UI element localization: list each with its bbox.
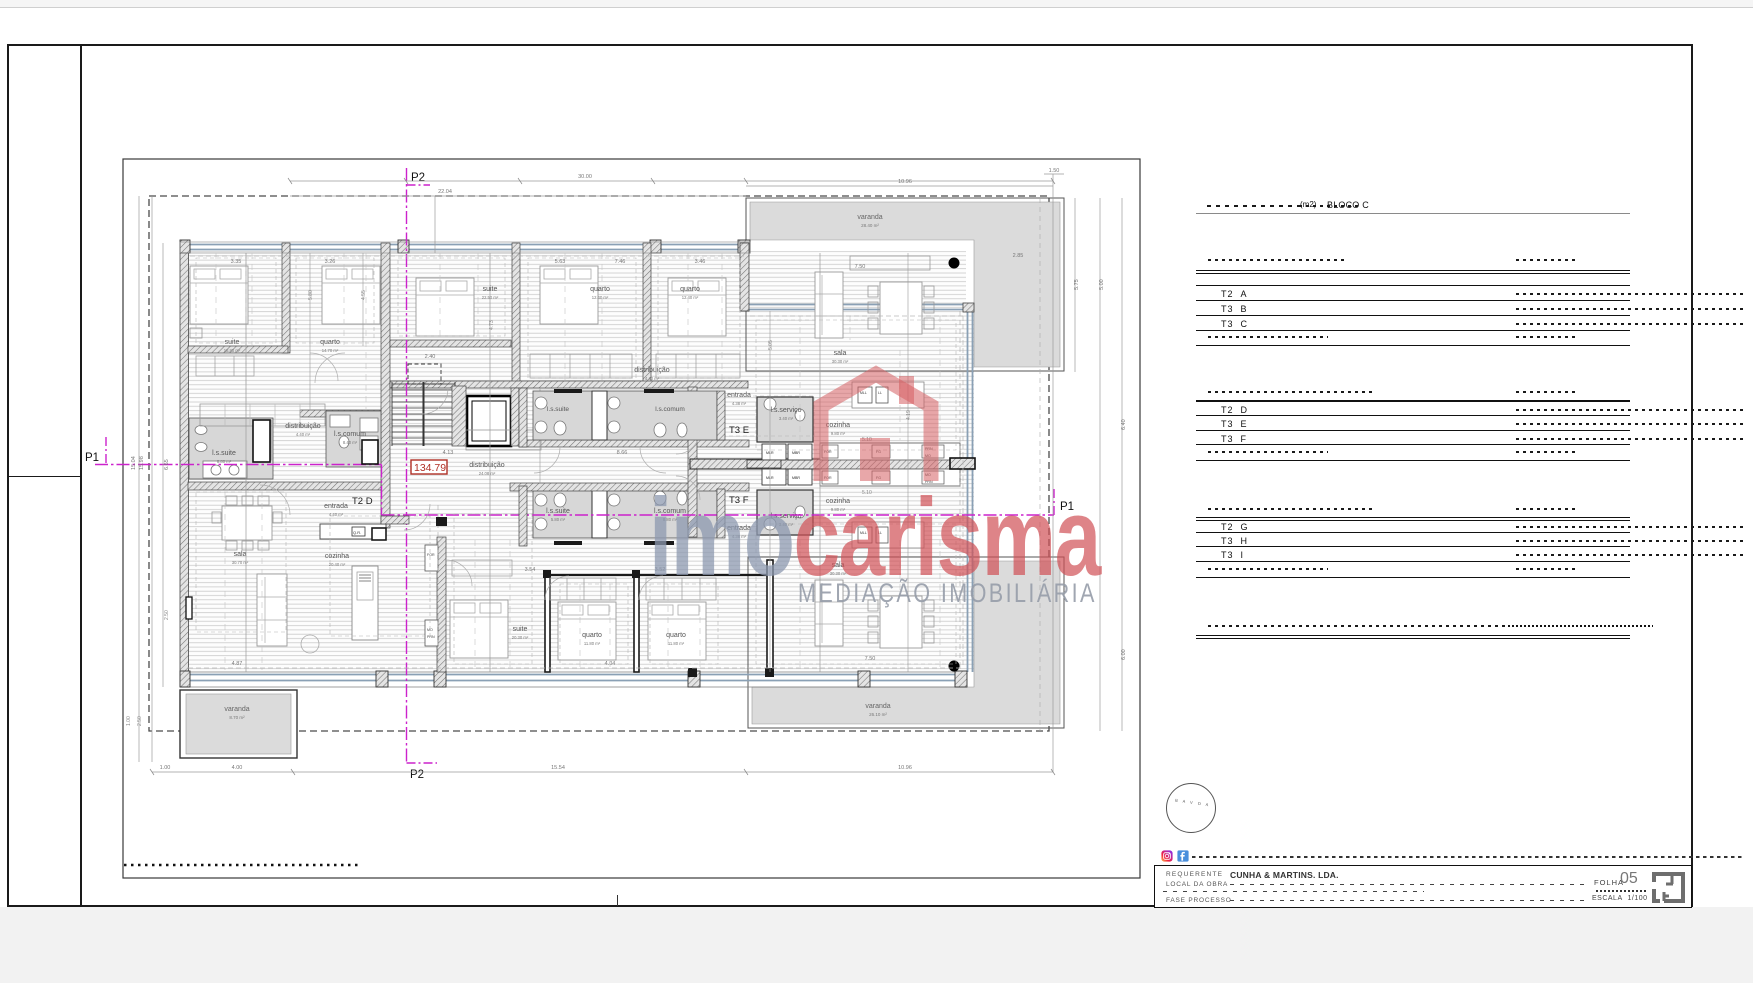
svg-text:Q.R.: Q.R. <box>353 530 361 535</box>
svg-text:2.40: 2.40 <box>425 354 436 360</box>
svg-text:entrada: entrada <box>324 503 348 510</box>
svg-text:PRN: PRN <box>427 635 435 639</box>
svg-text:P2: P2 <box>410 769 424 781</box>
svg-text:5.63: 5.63 <box>555 259 566 265</box>
svg-text:distribuição: distribuição <box>634 367 670 374</box>
svg-text:8.70 m²: 8.70 m² <box>229 715 245 720</box>
svg-text:3.46: 3.46 <box>695 259 706 265</box>
svg-text:4.40 m²: 4.40 m² <box>296 432 311 437</box>
svg-text:1.00: 1.00 <box>126 716 132 726</box>
svg-text:quarto: quarto <box>680 286 700 293</box>
svg-text:11.80 m²: 11.80 m² <box>668 641 685 646</box>
svg-text:4.40 m²: 4.40 m² <box>645 376 660 381</box>
svg-text:suite: suite <box>513 626 528 633</box>
svg-text:10.96: 10.96 <box>898 765 912 771</box>
svg-text:4.00: 4.00 <box>232 765 243 771</box>
svg-text:T2 D: T2 D <box>352 496 373 507</box>
svg-text:5.05: 5.05 <box>768 340 774 350</box>
svg-text:entrada: entrada <box>727 392 751 399</box>
svg-text:l.s.suite: l.s.suite <box>546 508 570 515</box>
svg-text:7.50: 7.50 <box>855 264 866 270</box>
svg-text:3.26: 3.26 <box>325 259 336 265</box>
svg-text:varanda: varanda <box>865 703 890 710</box>
svg-text:quarto: quarto <box>582 632 602 639</box>
svg-text:4.13: 4.13 <box>443 450 454 456</box>
svg-text:11.80 m²: 11.80 m² <box>584 641 601 646</box>
svg-text:l.s.comum: l.s.comum <box>655 406 685 413</box>
svg-text:7.50: 7.50 <box>865 656 876 662</box>
svg-text:quarto: quarto <box>590 286 610 293</box>
svg-text:5.80: 5.80 <box>308 290 314 300</box>
svg-text:28.40 m²: 28.40 m² <box>861 223 879 228</box>
svg-text:distribuição: distribuição <box>285 423 321 430</box>
svg-text:5.75: 5.75 <box>1074 279 1080 290</box>
svg-text:12.40 m²: 12.40 m² <box>682 295 699 300</box>
svg-text:6.65: 6.65 <box>164 459 170 470</box>
svg-text:134.79: 134.79 <box>414 462 446 474</box>
svg-text:3.35: 3.35 <box>231 259 242 265</box>
svg-text:8.40 m²: 8.40 m² <box>343 440 358 445</box>
svg-text:10.96: 10.96 <box>898 179 912 185</box>
svg-text:suite: suite <box>225 339 240 346</box>
svg-text:cozinha: cozinha <box>325 553 349 560</box>
svg-text:T3 E: T3 E <box>729 425 749 436</box>
svg-text:varanda: varanda <box>224 706 249 713</box>
svg-text:4.87: 4.87 <box>232 661 243 667</box>
svg-text:quarto: quarto <box>666 632 686 639</box>
svg-text:12.40 m²: 12.40 m² <box>592 295 609 300</box>
svg-text:l.s.suite: l.s.suite <box>547 406 569 413</box>
svg-text:2.50: 2.50 <box>164 610 170 620</box>
svg-text:2.50: 2.50 <box>137 716 143 726</box>
svg-text:6.00: 6.00 <box>1121 649 1127 660</box>
svg-text:15.54: 15.54 <box>551 765 565 771</box>
svg-text:P2: P2 <box>411 172 425 184</box>
svg-text:P1: P1 <box>85 452 99 464</box>
svg-text:14.70 m²: 14.70 m² <box>322 348 339 353</box>
svg-text:26.10 m²: 26.10 m² <box>869 712 887 717</box>
svg-text:30.00: 30.00 <box>578 174 592 180</box>
svg-text:5.80 m²: 5.80 m² <box>551 517 566 522</box>
svg-text:4.38 m²: 4.38 m² <box>732 401 747 406</box>
svg-text:22.04: 22.04 <box>438 189 452 195</box>
svg-text:sala: sala <box>834 350 847 357</box>
svg-text:8.66: 8.66 <box>617 450 628 456</box>
svg-text:l.s.comum: l.s.comum <box>334 431 366 438</box>
svg-text:20.30 m²: 20.30 m² <box>512 635 529 640</box>
svg-text:FOR: FOR <box>427 553 435 557</box>
svg-text:4.73: 4.73 <box>489 320 495 330</box>
svg-text:15.98: 15.98 <box>139 456 145 470</box>
svg-text:6.40: 6.40 <box>1121 419 1127 430</box>
svg-text:3.54: 3.54 <box>525 567 536 573</box>
svg-text:24.08 m²: 24.08 m² <box>479 471 496 476</box>
svg-text:2.85: 2.85 <box>1013 253 1024 259</box>
svg-text:varanda: varanda <box>857 214 882 221</box>
svg-text:20.40 m²: 20.40 m² <box>329 562 346 567</box>
svg-text:15.04: 15.04 <box>131 456 137 470</box>
svg-text:5.00: 5.00 <box>1099 279 1105 290</box>
svg-text:sala: sala <box>234 551 247 558</box>
svg-text:1.50: 1.50 <box>1049 168 1060 174</box>
svg-text:8.80 m²: 8.80 m² <box>217 459 232 464</box>
svg-text:distribuição: distribuição <box>469 462 505 469</box>
svg-text:18.80 m²: 18.80 m² <box>224 348 241 353</box>
svg-text:7.46: 7.46 <box>615 259 626 265</box>
svg-text:quarto: quarto <box>320 339 340 346</box>
svg-text:l.s.suite: l.s.suite <box>212 450 236 457</box>
svg-text:1.00: 1.00 <box>160 765 171 771</box>
